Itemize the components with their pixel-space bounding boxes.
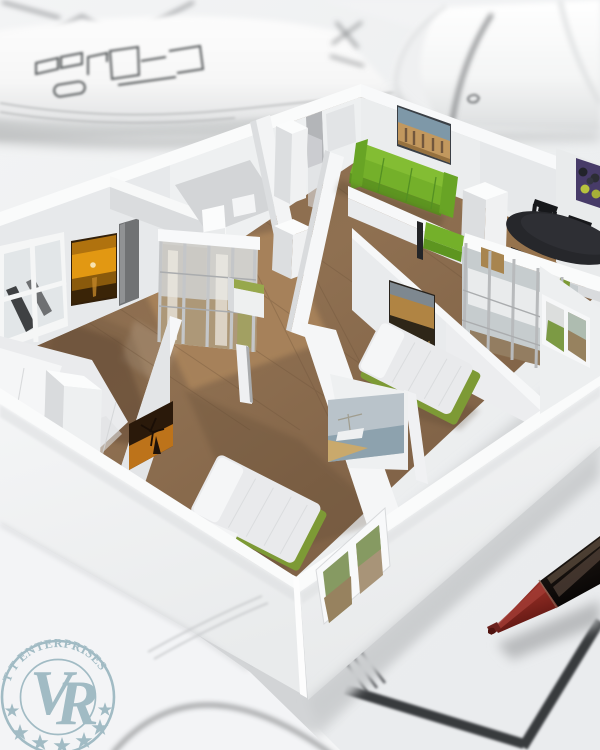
- svg-text:R: R: [55, 667, 99, 738]
